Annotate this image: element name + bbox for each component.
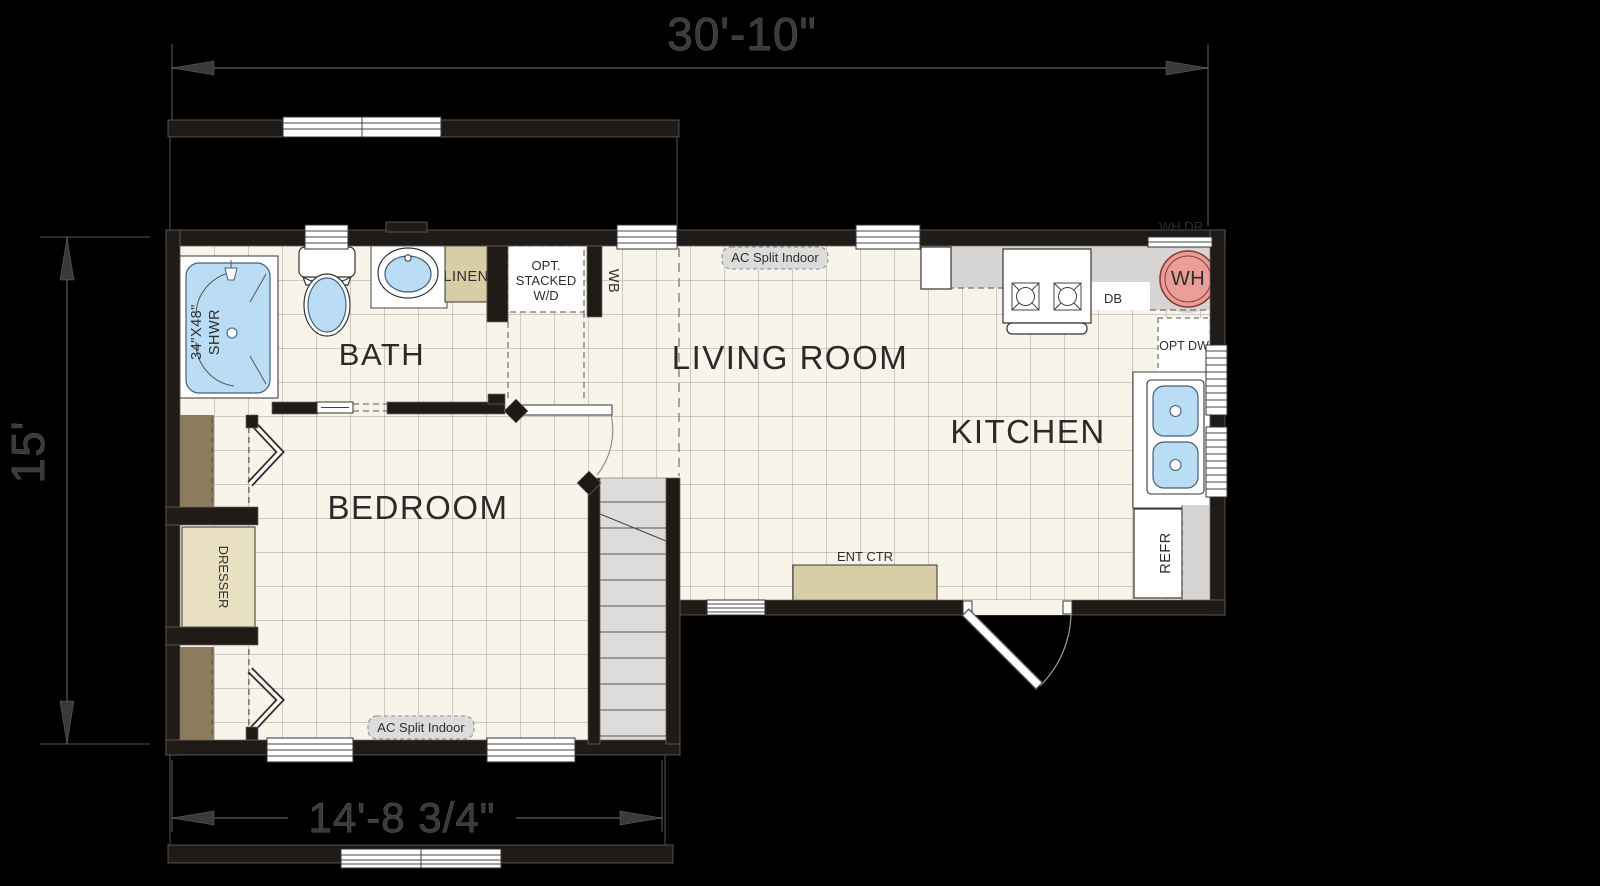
window-bedroom-1 — [267, 738, 353, 762]
window-top-3 — [856, 225, 920, 249]
window-top-1 — [305, 225, 348, 249]
linen-cabinet: LINEN — [443, 246, 488, 302]
wd-label-3: W/D — [533, 288, 558, 303]
wd-label-1: OPT. — [532, 258, 561, 273]
dresser: DRESSER — [182, 527, 255, 627]
room-label-living: LIVING ROOM — [672, 339, 909, 376]
wd-label-2: STACKED — [516, 273, 576, 288]
window-top-2 — [617, 225, 677, 249]
floor-plan-canvas: WH DB OPT DW REFR ENT CTR 34"X48" SHWR — [0, 0, 1600, 886]
linen-label: LINEN — [443, 269, 488, 285]
refr-label: REFR — [1158, 532, 1174, 573]
bedroom-door-leaf — [522, 405, 612, 415]
dim-height-label: 15' — [2, 421, 54, 484]
ac-split-bottom-label: AC Split Indoor — [377, 720, 465, 735]
kitchen-sink-icon — [1133, 372, 1210, 508]
water-heater-access-door — [1148, 237, 1212, 247]
entry-door-leaf — [962, 609, 1042, 689]
wh-dr-label: WH DR — [1159, 219, 1203, 234]
stairs — [600, 478, 666, 742]
bath-sink-icon — [371, 246, 447, 308]
room-label-bath: BATH — [339, 337, 425, 372]
dim-width-label: 30'-10" — [667, 8, 817, 60]
ac-split-top: AC Split Indoor — [722, 247, 828, 269]
dresser-label: DRESSER — [216, 546, 231, 609]
floor-plan-drawing: WH DB OPT DW REFR ENT CTR 34"X48" SHWR — [0, 0, 1600, 886]
opt-dw-label: OPT DW — [1159, 339, 1209, 353]
loft-end-wall — [168, 117, 679, 229]
dim-bedroom-width-label: 14'-8 3/4" — [308, 794, 495, 841]
db-label: DB — [1104, 291, 1122, 306]
water-heater-icon: WH — [1160, 251, 1216, 307]
ac-split-bottom: AC Split Indoor — [368, 716, 474, 739]
ent-ctr-label: ENT CTR — [837, 549, 893, 564]
stove-icon — [1003, 249, 1091, 334]
window-bottom-living — [707, 600, 765, 615]
opt-dishwasher: OPT DW — [1158, 318, 1210, 372]
window-right-1 — [1206, 345, 1227, 415]
shower-size-label: 34"X48" — [189, 304, 205, 360]
ac-split-top-label: AC Split Indoor — [731, 250, 819, 265]
toilet-icon — [299, 247, 355, 336]
wb-label: WB — [605, 269, 621, 293]
dimension-height: 15' — [2, 237, 150, 744]
room-label-kitchen: KITCHEN — [950, 413, 1105, 450]
room-label-bedroom: BEDROOM — [327, 489, 508, 526]
entry-door — [962, 600, 1072, 689]
window-bedroom-2 — [487, 738, 575, 762]
dimension-bedroom-width: 14'-8 3/4" — [172, 760, 662, 841]
water-heater-label: WH — [1171, 268, 1205, 290]
refrigerator-icon: REFR — [1134, 505, 1210, 600]
shower-icon: 34"X48" SHWR — [180, 256, 278, 398]
shower-name-label: SHWR — [207, 309, 223, 355]
window-right-2 — [1206, 427, 1227, 497]
